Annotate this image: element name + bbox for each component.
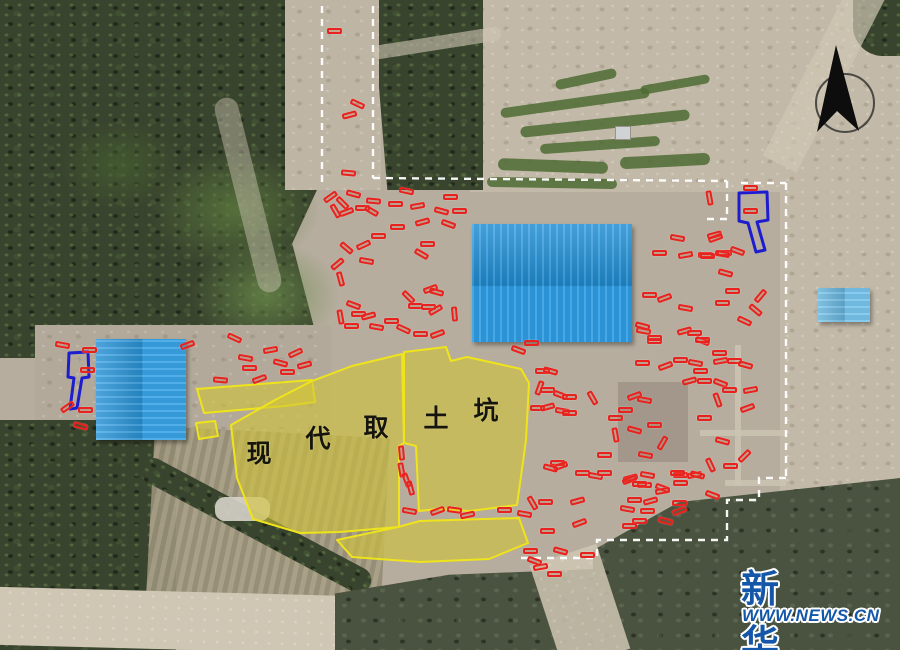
tomb-marker [540, 528, 555, 534]
tomb-marker [673, 480, 688, 486]
tomb-marker [608, 415, 623, 421]
tomb-marker [618, 407, 633, 413]
tomb-marker [715, 300, 730, 306]
tomb-marker [697, 415, 712, 421]
tomb-marker [547, 571, 562, 577]
tomb-marker [673, 357, 688, 363]
tomb-marker [280, 369, 295, 375]
tomb-marker [722, 387, 737, 393]
pit-label-char: 取 [363, 408, 388, 444]
north-arrow-icon [817, 45, 859, 132]
tomb-marker [652, 250, 667, 256]
tomb-marker [725, 288, 740, 294]
tomb-marker [443, 194, 458, 200]
tomb-marker [327, 28, 342, 34]
tomb-marker [700, 253, 715, 259]
tomb-marker [497, 507, 512, 513]
tomb-marker [420, 241, 435, 247]
tomb-marker [695, 337, 710, 343]
tomb-marker [562, 394, 577, 400]
tomb-marker [388, 201, 403, 207]
pit-label-char: 土 [423, 399, 448, 435]
tomb-marker [642, 292, 657, 298]
tomb-marker [670, 470, 685, 476]
tomb-marker [213, 376, 228, 383]
tomb-marker [390, 224, 405, 230]
tomb-marker [697, 378, 712, 384]
tomb-marker [398, 445, 405, 460]
tomb-marker [687, 330, 702, 336]
watermark-brand: 新华网 [741, 558, 784, 650]
tomb-marker [80, 367, 95, 373]
northeast-ramped-tomb-outline [739, 192, 768, 252]
tomb-marker [723, 463, 738, 469]
tomb-marker [672, 500, 687, 506]
tomb-marker [78, 407, 93, 413]
tomb-marker [242, 365, 257, 371]
tomb-marker [341, 169, 356, 176]
tomb-marker [384, 318, 399, 324]
tomb-marker [371, 233, 386, 239]
tomb-marker [627, 497, 642, 503]
tomb-marker [82, 347, 97, 353]
tomb-marker [635, 360, 650, 366]
tomb-marker [597, 470, 612, 476]
pit-label-char: 坑 [473, 391, 498, 427]
tomb-marker [597, 452, 612, 458]
tomb-marker [622, 523, 637, 529]
modern-pit-area [196, 421, 218, 439]
aerial-excavation-photo: 现代取土坑 新华网 WWW.NEWS.CN [0, 0, 900, 650]
tomb-marker [640, 508, 655, 514]
tomb-marker [452, 208, 467, 214]
tomb-marker [366, 197, 381, 204]
excavation-boundary-dashed [519, 478, 786, 558]
tomb-marker [523, 548, 538, 554]
tomb-marker [562, 410, 577, 416]
watermark-url: WWW.NEWS.CN [742, 606, 879, 626]
annotation-overlay [0, 0, 900, 650]
tomb-marker [743, 208, 758, 214]
tomb-marker [538, 499, 553, 505]
tomb-marker [413, 331, 428, 337]
tomb-marker [632, 481, 647, 487]
tomb-marker [647, 335, 662, 341]
tomb-marker [712, 350, 727, 356]
excavation-boundary-dashed [373, 178, 727, 181]
tomb-marker [344, 323, 359, 329]
tomb-marker [743, 185, 758, 191]
tomb-marker [524, 340, 539, 346]
tomb-marker [451, 306, 458, 321]
pit-label-char: 现 [246, 434, 271, 470]
tomb-marker [647, 422, 662, 428]
pit-label-char: 代 [305, 419, 330, 455]
tomb-marker [693, 368, 708, 374]
tomb-marker [580, 552, 595, 558]
